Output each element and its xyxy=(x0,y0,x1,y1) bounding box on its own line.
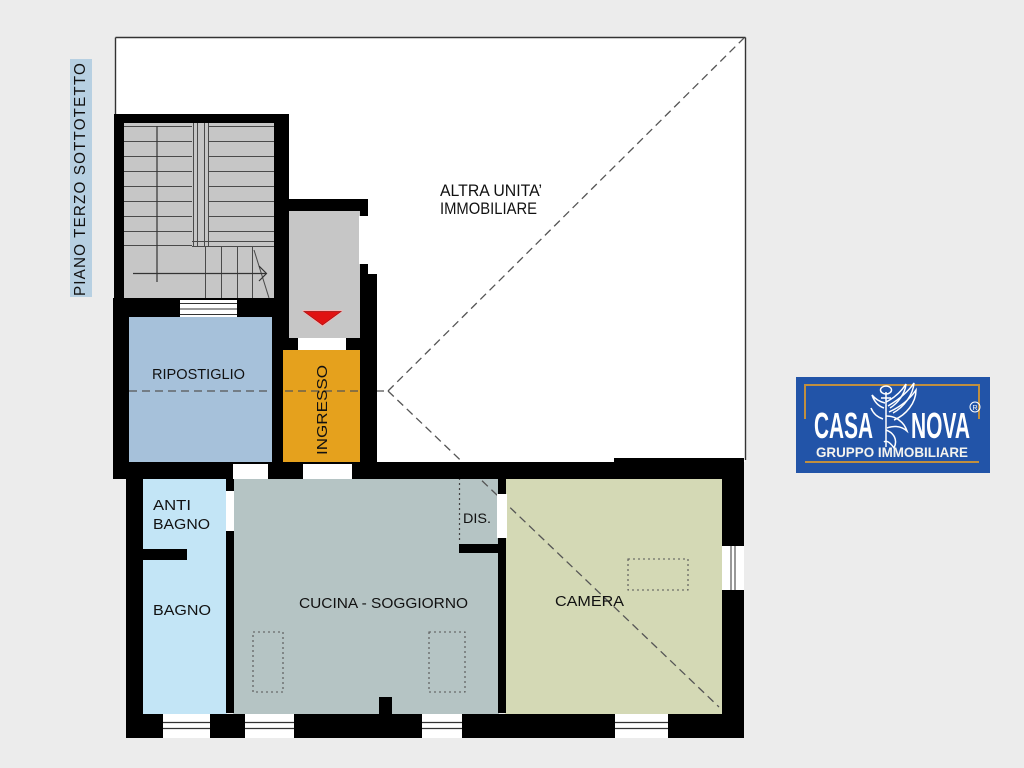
svg-text:ALTRA UNITA’: ALTRA UNITA’ xyxy=(440,181,542,200)
svg-text:NOVA: NOVA xyxy=(911,405,970,446)
svg-text:CAMERA: CAMERA xyxy=(555,593,624,610)
svg-text:CASA: CASA xyxy=(814,405,873,446)
svg-text:GRUPPO IMMOBILIARE: GRUPPO IMMOBILIARE xyxy=(816,444,968,460)
svg-text:INGRESSO: INGRESSO xyxy=(314,365,331,455)
svg-text:BAGNO: BAGNO xyxy=(153,602,211,619)
svg-text:ANTI: ANTI xyxy=(153,497,191,514)
svg-text:BAGNO: BAGNO xyxy=(153,516,210,533)
svg-text:IMMOBILIARE: IMMOBILIARE xyxy=(440,199,537,218)
svg-text:DIS.: DIS. xyxy=(463,510,491,526)
svg-text:PIANO TERZO SOTTOTETTO: PIANO TERZO SOTTOTETTO xyxy=(72,62,89,296)
svg-text:R: R xyxy=(973,405,978,412)
svg-text:RIPOSTIGLIO: RIPOSTIGLIO xyxy=(152,366,245,383)
svg-text:CUCINA - SOGGIORNO: CUCINA - SOGGIORNO xyxy=(299,595,468,612)
